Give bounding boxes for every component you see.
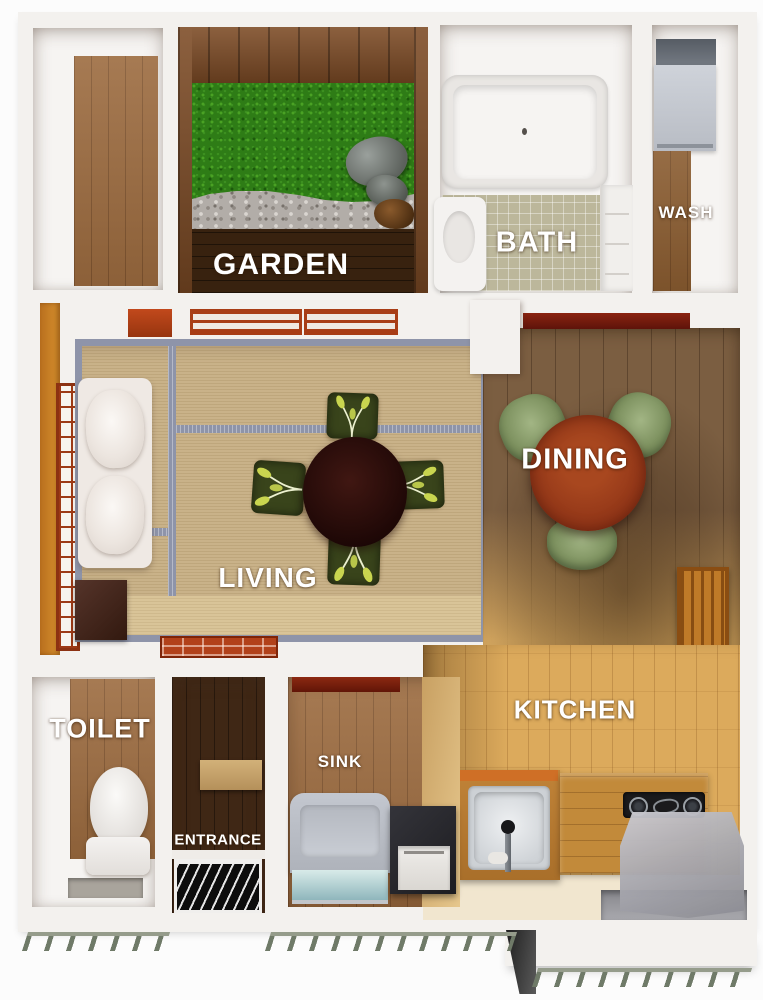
room-label-living: LIVING [218,562,317,594]
garden-back-wall [178,27,428,85]
cabinet-drawer [398,846,450,890]
wash-room: WASH [652,25,738,293]
foundation-footings-left [22,932,170,951]
wall-rack [677,567,729,649]
leaf-pattern-icon [326,392,379,440]
entrance-room: ENTRANCE [172,677,265,913]
side-table [75,580,127,640]
genkan-floor-grate [174,859,262,913]
faucet-handle [488,852,508,864]
garden-side-wall-right [414,27,428,293]
room-label-toilet: TOILET [49,714,151,745]
toilet-room: TOILET [32,677,155,907]
drawer-line [605,243,629,245]
range-hood [620,812,744,918]
room-label-dining: DINING [521,444,629,477]
closet-room [33,28,163,290]
entrance-step [172,850,265,859]
bath-room: BATH [440,25,632,293]
dining-window-sill [523,313,690,329]
bath-counter [600,185,633,291]
bathtub-drain [522,128,527,135]
drawer-line [605,273,629,275]
washing-machine-top [656,39,716,67]
living-walkway [82,596,481,635]
toilet-tank [86,837,150,875]
kitchen-sink-unit [458,770,560,880]
living-table [303,437,407,547]
room-label-kitchen: KITCHEN [514,695,637,726]
garden-rock-brown [374,199,414,229]
leaf-pattern-icon [251,460,307,516]
living-south-red-door [160,636,278,658]
room-label-bath: BATH [496,227,578,260]
garden-sliding-door-right [304,309,398,335]
dining-room: DINING [483,328,740,660]
floor-plan: GARDEN BATH WASH [0,0,763,1000]
living-dining-wall-stub [470,300,520,374]
sink-room-red-header [292,677,400,692]
room-label-sink: SINK [318,752,363,772]
drawer-line [605,213,629,215]
drawer-handle [404,851,444,854]
toilet-bowl [90,767,148,847]
floor-cushion-north [326,392,379,440]
garden-sliding-door-left [190,309,302,335]
vanity-basin [292,870,388,904]
kitchen-sink-top-strip [460,770,558,781]
kitchen-sink-basin [468,786,550,870]
living-room: LIVING [40,303,490,655]
foundation-footings-center [265,932,517,951]
foundation-footings-right [532,968,752,987]
washing-machine [654,65,716,151]
washer-base-line [657,144,713,148]
room-label-garden: GARDEN [213,248,349,282]
toilet-floor-tray [68,878,143,898]
engawa-red-panel [128,309,172,337]
tatami-mat-border-vertical [168,346,176,635]
entrance-shelf [200,760,262,790]
sofa-pillow [84,389,146,470]
vanity-top [300,805,380,857]
room-label-entrance: ENTRANCE [174,832,261,849]
closet-wood-floor [74,56,158,286]
sofa-pillow [85,475,146,555]
sofa [78,378,152,568]
black-cabinet [390,806,456,894]
sink-room: SINK [288,677,460,907]
bath-vanity-sink [434,197,486,291]
floor-cushion-west [251,460,307,516]
room-label-wash: WASH [659,203,714,223]
sink-drain [501,820,515,834]
garden-room: GARDEN [178,27,428,293]
garden-side-wall-left [178,27,192,293]
bath-sink-basin [443,211,475,263]
bathtub [442,75,608,189]
kitchen-extension-wall [505,932,757,966]
kitchen-area: KITCHEN [423,645,740,920]
vanity-unit [290,793,390,873]
